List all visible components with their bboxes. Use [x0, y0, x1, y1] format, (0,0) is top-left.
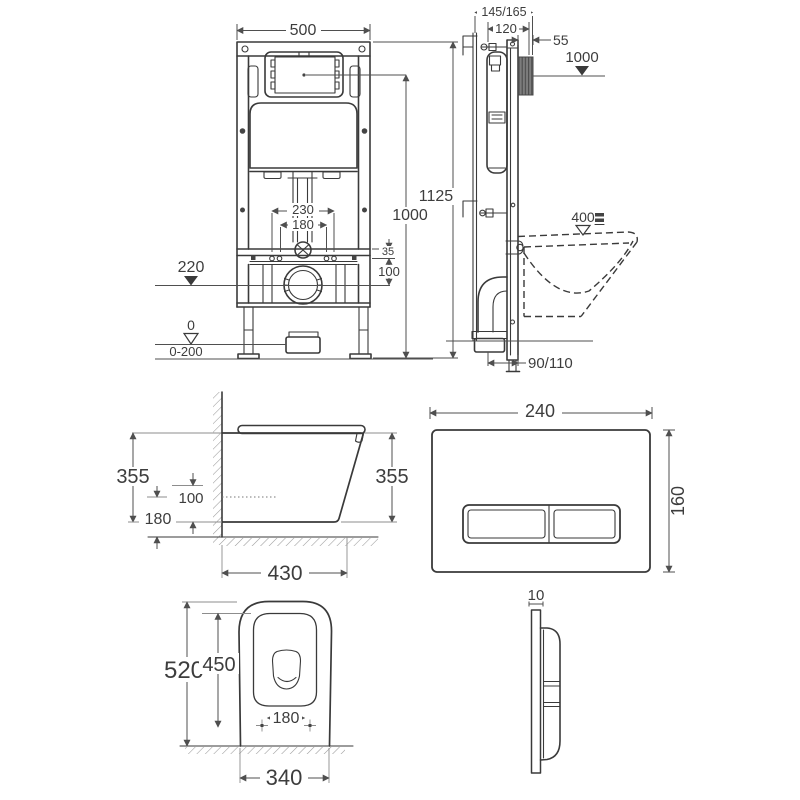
bolt-icon	[240, 208, 245, 213]
bowl-water-line	[278, 678, 296, 682]
floor-hatch	[222, 538, 378, 546]
plate-recess-block	[518, 57, 533, 95]
pan-dashed-profile	[518, 232, 637, 317]
dim-plate-width: 240	[525, 401, 555, 421]
bolt-icon	[362, 208, 367, 213]
dim-width: 500	[290, 22, 317, 39]
level-marker-filled-icon	[184, 276, 198, 286]
frame-profile	[507, 40, 518, 360]
dim-panel-height: 1000	[392, 207, 428, 224]
view-plate-side: 10	[528, 587, 560, 773]
dim-frame-depth: 120	[495, 21, 517, 36]
view-frame-side: 1000 90/110 145/165 120 55	[446, 4, 637, 372]
view-pan-side: 355 355 100 180 430	[115, 392, 410, 585]
technical-drawing: 500 1125 1000 230 180 35 100 220 0 0-200	[0, 0, 800, 800]
wall-line	[473, 33, 477, 341]
bolt-icon	[362, 128, 368, 134]
foot-plate	[238, 354, 259, 359]
frame-fixing-dots	[240, 128, 368, 212]
support-rail-lower	[250, 262, 357, 265]
flush-stub	[506, 241, 523, 254]
drain-flange	[472, 332, 507, 339]
screw-icon	[359, 46, 365, 52]
dim-length: 520	[164, 657, 204, 684]
plate-profile	[532, 610, 541, 773]
drain-elbow-inner	[493, 291, 507, 332]
side-bracket	[248, 66, 258, 97]
dim-supply-offset: 100	[178, 490, 203, 507]
dim-floor-adjust: 0-200	[169, 344, 202, 359]
fixing-hole	[277, 256, 282, 261]
surface-bar	[595, 219, 604, 223]
fixing-hole	[332, 256, 337, 261]
dim-fixing-spacing: 180	[273, 710, 300, 727]
dim-projection: 430	[267, 562, 302, 585]
fixing-point	[309, 724, 312, 727]
flush-button-large	[468, 510, 545, 538]
screw-icon	[511, 320, 515, 324]
dim-height-left: 355	[116, 466, 149, 488]
outlet-box	[286, 337, 320, 353]
dim-height-right: 355	[375, 466, 408, 488]
fixing-hole	[270, 256, 275, 261]
dim-depth-total: 145/165	[481, 5, 526, 19]
dim-outlet-level: 220	[178, 259, 205, 276]
bolt-icon	[240, 128, 246, 134]
dim-rail-offset: 35	[382, 246, 394, 258]
view-frame-front: 500 1125 1000 230 180 35 100 220 0 0-200	[155, 22, 458, 359]
flush-button-small	[554, 510, 615, 538]
level-marker-open-icon	[184, 334, 198, 345]
wall-hatch	[185, 747, 345, 754]
dim-outlet-distance: 90/110	[528, 355, 573, 372]
flush-plate	[432, 430, 650, 572]
dim-total-height: 1125	[419, 188, 454, 205]
fixing-point	[261, 724, 264, 727]
level-marker-filled-icon	[575, 66, 589, 76]
button-slots	[544, 682, 561, 707]
ext-outlet-distance	[488, 352, 518, 366]
frame-profile-detail	[507, 48, 518, 371]
screw-icon	[511, 203, 515, 207]
frame-feet	[238, 307, 371, 359]
dim-plate-height: 160	[668, 486, 688, 516]
dim-thickness: 10	[528, 587, 545, 604]
button-surround	[463, 505, 620, 543]
foot-plate	[350, 354, 371, 359]
wc-frame-installation-diagram: 500 1125 1000 230 180 35 100 220 0 0-200	[0, 0, 800, 800]
seat-opening	[254, 614, 317, 707]
top-bracket	[463, 36, 477, 55]
screw-icon	[242, 46, 248, 52]
flush-bend-cross	[297, 245, 309, 256]
ticks-plate-recess	[518, 35, 533, 45]
view-pan-top: 180 520 450 340	[160, 602, 353, 791]
dim-outlet-height: 180	[145, 511, 172, 528]
dim-rim-height: 400	[571, 209, 595, 225]
pan-bowl-curve	[524, 241, 633, 293]
fixing-nut	[352, 256, 357, 261]
pan-front-edge	[581, 242, 637, 317]
pan-body-outline	[222, 433, 363, 522]
pan-rim-top	[518, 232, 637, 242]
dim-outlet-drop: 100	[378, 264, 400, 279]
pan-rim-under	[524, 243, 629, 247]
fixing-hole	[324, 256, 329, 261]
screw-icon	[511, 42, 515, 46]
dim-floor-zero: 0	[187, 317, 195, 333]
bowl-interior	[273, 650, 301, 689]
surface-bar	[595, 213, 604, 217]
dim-fixing-inner: 180	[292, 217, 314, 232]
frame-top-bar	[237, 42, 370, 56]
view-plate-front: 240 160	[430, 401, 688, 572]
access-panel-center	[302, 73, 305, 76]
dim-fixing-outer: 230	[292, 202, 314, 217]
mid-bracket	[463, 201, 477, 217]
dim-inner-length: 450	[202, 654, 235, 676]
dim-plate-center-height: 1000	[565, 49, 598, 66]
cistern-outline	[250, 103, 357, 172]
cistern-profile-detail	[489, 56, 505, 168]
fixing-nut	[251, 256, 256, 261]
dim-plate-recess: 55	[553, 32, 569, 48]
dim-pan-width: 340	[266, 765, 303, 790]
finished-surface-icon	[595, 213, 604, 225]
